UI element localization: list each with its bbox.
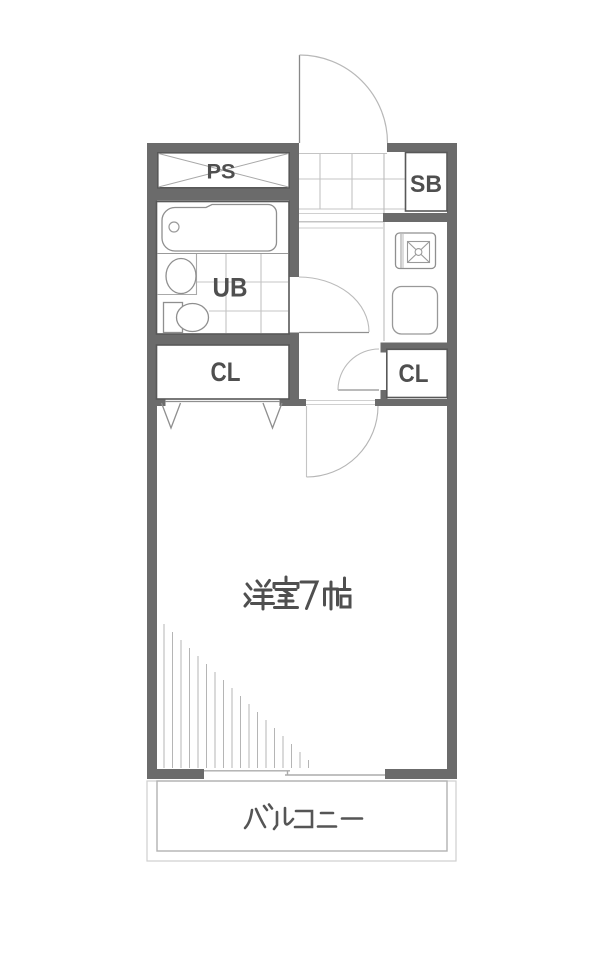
svg-text:SB: SB	[410, 171, 442, 198]
svg-text:UB: UB	[213, 273, 248, 303]
svg-text:PS: PS	[207, 160, 236, 184]
svg-text:CL: CL	[211, 357, 241, 387]
svg-text:CL: CL	[399, 360, 429, 388]
